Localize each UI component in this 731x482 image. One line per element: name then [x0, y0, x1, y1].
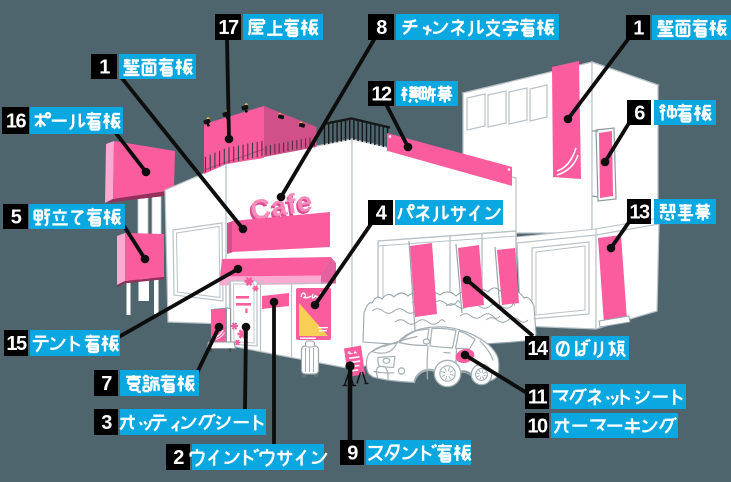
- svg-text:13: 13: [629, 202, 650, 224]
- svg-text:3: 3: [101, 412, 112, 434]
- svg-text:14: 14: [527, 338, 549, 360]
- svg-text:12: 12: [371, 84, 392, 106]
- svg-text:2: 2: [173, 447, 184, 469]
- svg-text:7: 7: [101, 373, 112, 395]
- svg-text:5: 5: [11, 207, 22, 229]
- svg-text:1: 1: [633, 18, 644, 40]
- svg-text:17: 17: [218, 17, 239, 39]
- svg-text:11: 11: [528, 387, 548, 409]
- svg-text:1: 1: [99, 57, 110, 79]
- svg-text:15: 15: [6, 333, 27, 355]
- svg-text:8: 8: [376, 17, 387, 39]
- svg-text:10: 10: [527, 416, 548, 438]
- svg-text:6: 6: [634, 103, 645, 125]
- svg-text:16: 16: [6, 111, 27, 133]
- svg-text:9: 9: [347, 443, 358, 465]
